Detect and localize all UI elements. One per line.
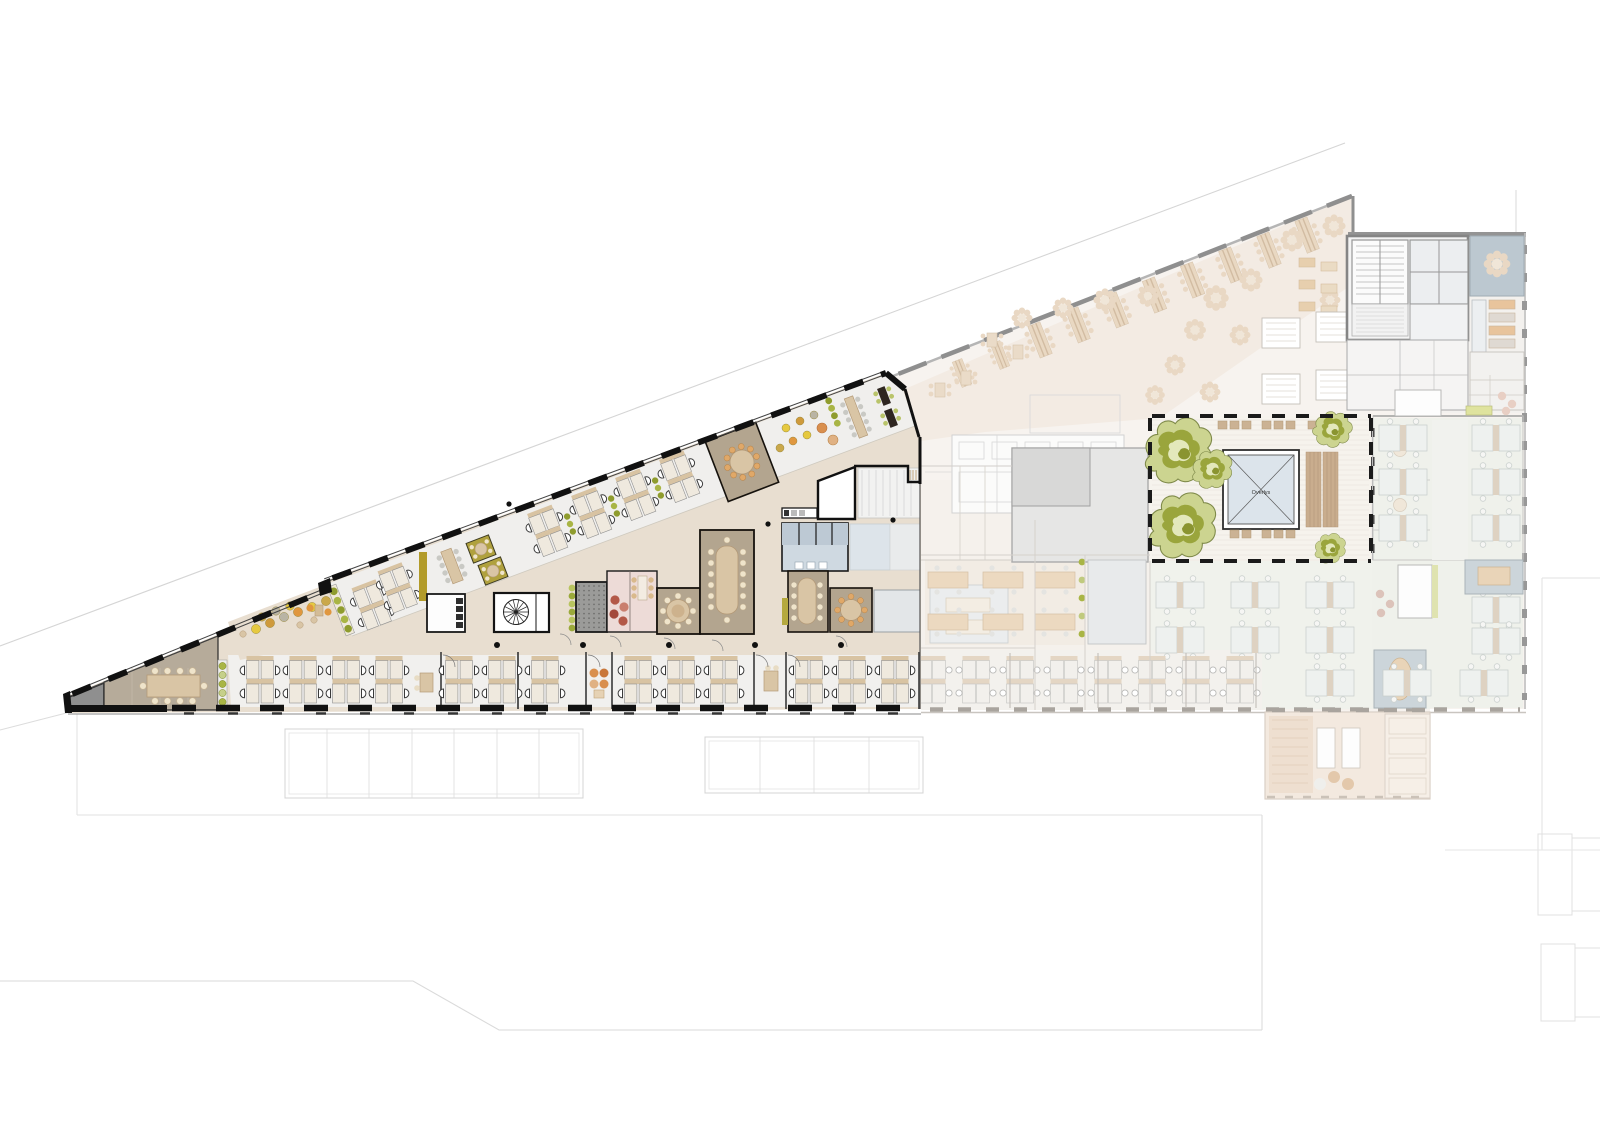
svg-text:Overlys: Overlys [1252, 490, 1271, 496]
